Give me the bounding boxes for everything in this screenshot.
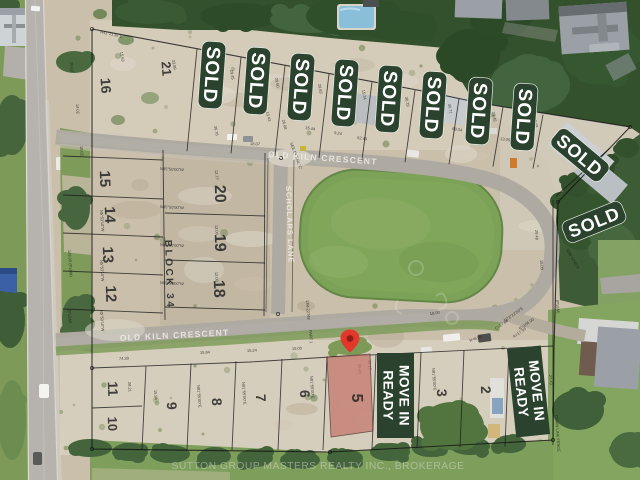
svg-text:SOLD: SOLD: [466, 82, 491, 140]
svg-text:15.00: 15.00: [539, 260, 545, 271]
svg-text:27.43: 27.43: [548, 375, 554, 386]
svg-text:2: 2: [478, 386, 494, 395]
svg-text:READY: READY: [381, 370, 396, 420]
svg-text:74.39: 74.39: [119, 355, 130, 361]
svg-text:18.07: 18.07: [250, 141, 261, 146]
svg-text:SUTTON GROUP MASTERS REALTY IN: SUTTON GROUP MASTERS REALTY INC., BROKER…: [171, 461, 464, 472]
svg-text:21: 21: [159, 61, 175, 76]
svg-text:15: 15: [96, 170, 114, 187]
svg-text:29.63: 29.63: [69, 62, 75, 73]
svg-text:(P1&M): (P1&M): [555, 300, 561, 315]
svg-text:16: 16: [97, 77, 114, 94]
svg-text:15.24: 15.24: [247, 347, 258, 353]
svg-text:3: 3: [434, 389, 450, 398]
svg-text:12: 12: [102, 285, 120, 302]
svg-text:11: 11: [105, 381, 122, 397]
svg-text:(P1&M): (P1&M): [67, 310, 73, 325]
svg-text:13: 13: [99, 246, 117, 263]
svg-text:15.94: 15.94: [153, 390, 159, 401]
svg-text:18: 18: [210, 280, 228, 298]
svg-text:SOLD: SOLD: [420, 76, 445, 134]
svg-text:14: 14: [101, 206, 119, 224]
svg-text:7: 7: [253, 394, 269, 403]
svg-text:SOLD: SOLD: [376, 70, 401, 128]
svg-text:20: 20: [211, 185, 229, 203]
svg-text:SOLD: SOLD: [332, 64, 357, 122]
svg-text:SOLD: SOLD: [288, 58, 313, 116]
svg-text:SOLD: SOLD: [511, 88, 536, 146]
svg-text:10: 10: [105, 416, 120, 431]
svg-text:MOVE IN: MOVE IN: [397, 365, 412, 426]
svg-text:14.02: 14.02: [75, 104, 81, 115]
svg-text:8: 8: [209, 398, 225, 407]
svg-text:PART 1: PART 1: [308, 330, 314, 345]
svg-text:19: 19: [211, 234, 229, 252]
svg-text:15.00: 15.00: [292, 345, 303, 351]
svg-text:SOLD: SOLD: [199, 46, 224, 104]
svg-text:6: 6: [297, 390, 313, 399]
svg-text:5: 5: [348, 394, 365, 403]
svg-text:28.21: 28.21: [127, 382, 133, 393]
svg-text:SOLD: SOLD: [244, 52, 269, 110]
svg-text:15.94: 15.94: [200, 349, 211, 355]
svg-text:29.48: 29.48: [534, 230, 540, 241]
svg-text:9: 9: [164, 402, 180, 411]
svg-text:12.77: 12.77: [214, 170, 220, 181]
svg-text:18.02: 18.02: [79, 146, 85, 157]
